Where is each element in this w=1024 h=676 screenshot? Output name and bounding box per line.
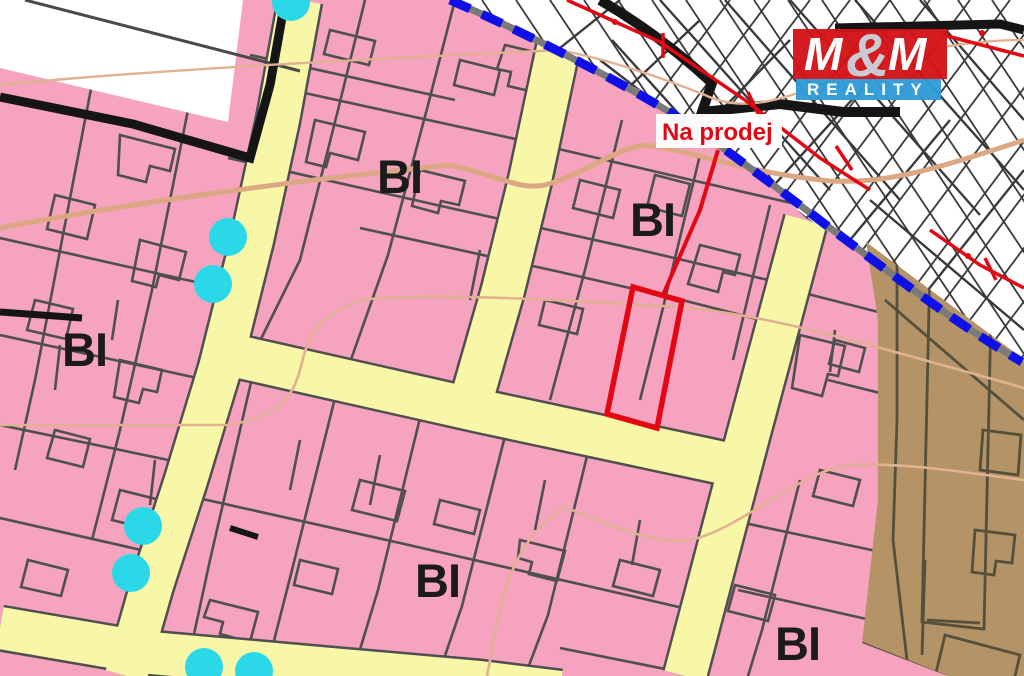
red-dot bbox=[979, 30, 985, 36]
zone-label-bi-bottom-right: BI bbox=[775, 617, 820, 670]
mm-reality-logo: M & M REALITY bbox=[793, 22, 947, 100]
zone-label-bi-top-right: BI bbox=[630, 193, 675, 246]
zone-label-bi-left: BI bbox=[62, 323, 107, 376]
zoning-map: BI BI BI BI BI Na prodej M & M REALITY bbox=[0, 0, 1024, 676]
logo-m1: M bbox=[804, 28, 844, 80]
zone-label-bi-bottom-middle: BI bbox=[415, 554, 460, 607]
logo-ampersand: & bbox=[846, 22, 889, 89]
map-canvas[interactable]: BI BI BI BI BI Na prodej M & M REALITY bbox=[0, 0, 1024, 676]
zone-label-bi-top-middle: BI bbox=[377, 150, 422, 203]
red-dot bbox=[965, 253, 971, 259]
for-sale-label: Na prodej bbox=[662, 119, 773, 146]
logo-reality-text: REALITY bbox=[807, 80, 929, 99]
red-dot bbox=[612, 19, 618, 25]
logo-m2: M bbox=[888, 28, 928, 80]
for-sale-flag: Na prodej bbox=[656, 114, 782, 148]
